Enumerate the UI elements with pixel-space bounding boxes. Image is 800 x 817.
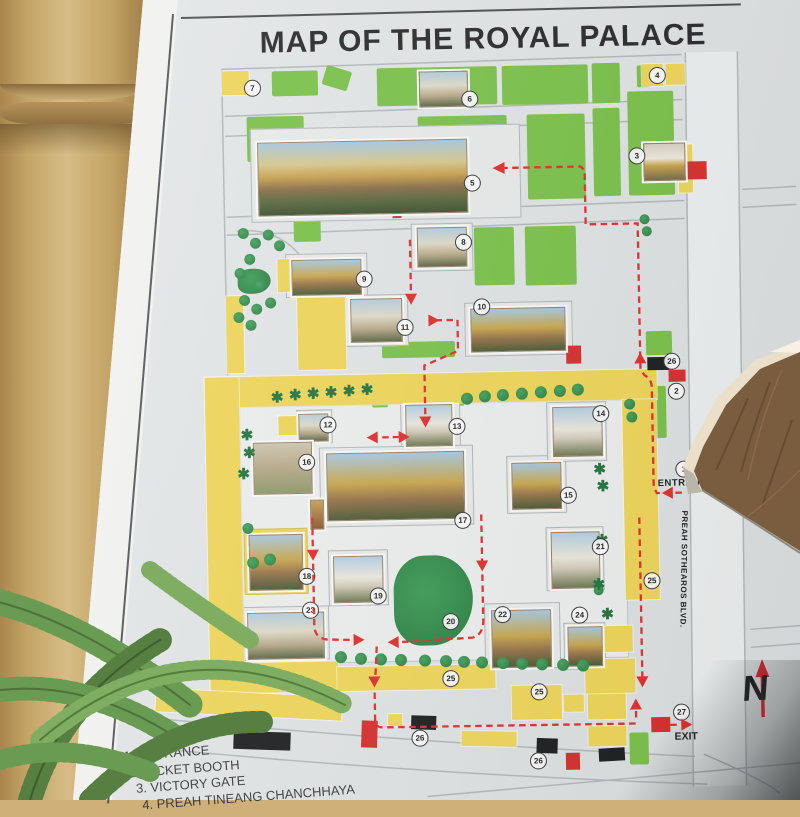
torn-cardboard <box>600 330 800 570</box>
palm-fronds-icon <box>0 520 420 800</box>
exit-label: EXIT <box>674 730 698 742</box>
photo-of-map-sign: { "board": { "title": "MAP OF THE ROYAL … <box>0 0 800 800</box>
compass-north-label: N <box>741 667 770 710</box>
